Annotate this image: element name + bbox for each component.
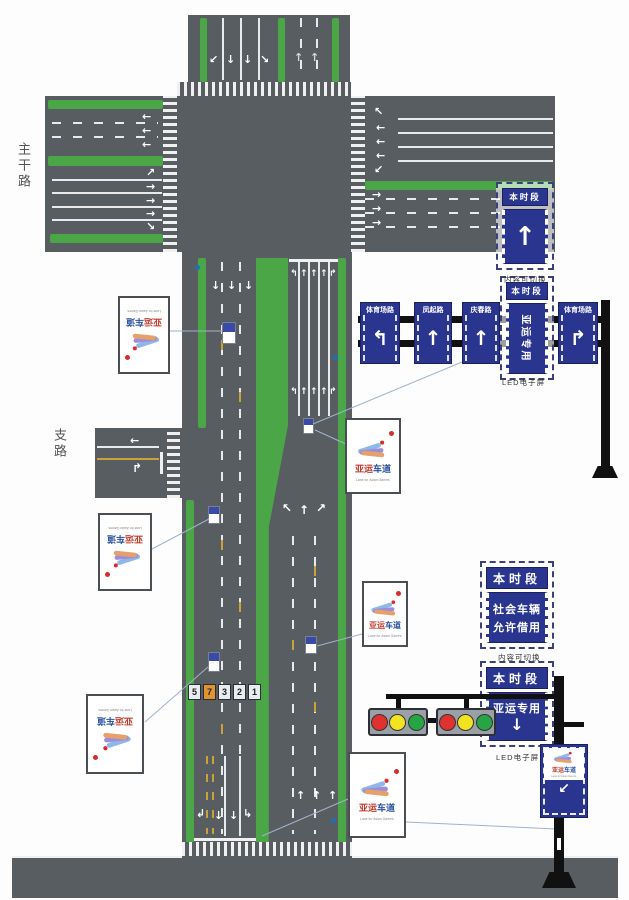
- sign-subtitle: Lane for Asian Games: [127, 310, 161, 314]
- sign-subtitle: Lane for Asian Games: [356, 477, 390, 481]
- sign-title: 亚运车道: [97, 715, 133, 728]
- road-marker-sign: [208, 506, 220, 524]
- green-light-icon: [408, 714, 425, 731]
- dedicated-lane-body: 亚运专用: [506, 303, 548, 374]
- lane-arrow: ↓: [244, 280, 253, 291]
- asian-games-lane-sign: 亚运车道 Lane for Asian Games: [86, 694, 144, 774]
- overhead-sign-tiyuchang-left: 体育场路 ↰: [360, 302, 400, 364]
- sign-subtitle: Lane for Asian Games: [108, 527, 142, 531]
- asian-games-lane-sign: 亚运车道 Lane for Asian Games: [98, 513, 152, 591]
- lane-arrow: ↓: [229, 810, 238, 821]
- lane-arrow: ↙: [374, 164, 383, 175]
- red-sun-icon: [105, 573, 110, 578]
- north-green-strip: [278, 18, 285, 82]
- lane-arrow: ↑: [312, 790, 321, 801]
- road-name: 体育场路: [564, 305, 592, 315]
- crosswalk-north: [177, 82, 351, 96]
- red-sun-icon: [396, 591, 401, 596]
- lane-arrow: ↑: [300, 388, 308, 397]
- sign-subtitle: Lane for Asian Games: [551, 774, 576, 777]
- south-left-green-upper: [198, 258, 206, 428]
- road-name: 凤起路: [423, 305, 444, 315]
- lane-line: [258, 18, 260, 80]
- down-arrow-icon: ↓: [510, 717, 523, 733]
- red-sun-icon: [389, 431, 394, 436]
- lane-arrow: ↙: [209, 54, 218, 65]
- asian-games-emblem-icon: [127, 332, 161, 354]
- down-left-arrow-icon: ↙: [558, 782, 570, 796]
- lane-arrow: ←: [142, 139, 151, 150]
- sign-title: 亚运车道: [355, 462, 391, 475]
- north-green-strip: [332, 18, 339, 82]
- branch-road-label: 支路: [50, 428, 69, 460]
- asian-games-emblem-icon: [97, 730, 133, 753]
- lane-line: [222, 18, 224, 80]
- lane-line: [398, 146, 553, 148]
- red-light-icon: [439, 714, 456, 731]
- yellow-dash: [292, 640, 294, 650]
- lane-arrow: →: [372, 203, 381, 214]
- asian-games-lane-pole-sign: 亚运车道 Lane for Asian Games ↙: [540, 744, 588, 818]
- lane-line: [97, 446, 159, 448]
- crosswalk-branch: [167, 428, 180, 498]
- main-road-label: 主干路: [14, 142, 33, 190]
- crosswalk-east: [351, 96, 365, 252]
- road-marker-sign: [303, 418, 314, 434]
- lane-arrow: ↑: [310, 270, 318, 279]
- asian-games-lane-sign: 亚运车道 Lane for Asian Games: [348, 752, 406, 838]
- straight-arrow-icon: ↑: [473, 328, 490, 348]
- lane-arrow: ↲: [196, 808, 205, 819]
- stop-line-branch: [160, 452, 163, 474]
- yellow-center-dash: [206, 756, 208, 834]
- lane-arrow: ←: [130, 435, 139, 446]
- camera-dot: [195, 265, 200, 270]
- sign-title: 亚运车道: [359, 801, 395, 814]
- lane-arrow: →: [146, 208, 155, 219]
- dedicated-text: 亚运专用: [493, 700, 541, 716]
- lane-line: [398, 132, 553, 134]
- straight-arrow-icon: ↑: [425, 328, 442, 348]
- sign-title: 亚运车道: [126, 317, 162, 330]
- green-light-icon: [476, 714, 493, 731]
- right-turn-arrow-icon: ↱: [570, 328, 587, 348]
- pole-white-band: [557, 838, 561, 850]
- overhead-sign-tiyuchang-right: 体育场路 ↱: [558, 302, 598, 364]
- time-period-header: 本时段: [502, 188, 548, 206]
- overhead-sign-fengqi: 凤起路 ↑: [414, 302, 452, 364]
- lane-number-plate: 2: [233, 684, 246, 700]
- lane-arrow: ←: [142, 111, 151, 122]
- lane-line-dashed: [300, 18, 302, 80]
- stop-line-south-approach: [194, 838, 256, 841]
- south-left-green-lower: [186, 500, 194, 856]
- sign-title: 亚运车道: [107, 534, 143, 547]
- merge-arrow: ↑: [299, 504, 309, 516]
- lane-arrow: ↑: [310, 388, 318, 397]
- lane-line: [239, 756, 241, 836]
- led-sign-dedicated-lane-overhead: 本时段 亚运专用: [500, 276, 554, 380]
- lane-arrow: ←: [376, 122, 385, 133]
- crosswalk-south: [182, 842, 352, 856]
- signal-connector: [428, 718, 436, 723]
- time-period-header: 本时段: [486, 567, 548, 589]
- signal-hanger: [396, 699, 401, 708]
- merge-arrow: ↗: [316, 502, 326, 514]
- sign-title: 亚运车道: [369, 620, 401, 631]
- lane-arrow: ↑: [310, 52, 319, 63]
- lane-arrow: ↑: [320, 270, 328, 279]
- signal-hanger: [464, 699, 469, 708]
- led-sign-social-vehicles: 本时段 社会车辆 允许借用: [480, 561, 554, 649]
- red-sun-icon: [394, 769, 399, 774]
- lane-arrow: ↓: [214, 810, 223, 821]
- road-marker-sign: [208, 652, 220, 672]
- red-sun-icon: [93, 755, 98, 760]
- traffic-light-head: [368, 708, 428, 736]
- asian-games-lane-sign: 亚运车道 Lane for Asian Games: [345, 418, 401, 494]
- lane-arrow: ←: [376, 150, 385, 161]
- yellow-dash: [221, 540, 223, 550]
- yellow-light-icon: [389, 714, 406, 731]
- lane-line-dashed: [292, 536, 294, 834]
- time-period-header: 本时段: [486, 667, 548, 689]
- sign-subtitle: Lane for Asian Games: [360, 816, 394, 820]
- straight-arrow-icon: ↑: [514, 224, 536, 250]
- north-green-strip: [200, 18, 207, 82]
- asian-games-lane-sign: 亚运车道 Lane for Asian Games: [362, 581, 408, 647]
- lane-line: [398, 118, 553, 120]
- left-turn-arrow-icon: ↰: [372, 328, 389, 348]
- borrow-line1: 社会车辆: [493, 601, 541, 617]
- led-sign-this-period-straight: 本时段 ↑: [496, 182, 554, 270]
- lane-line: [224, 756, 226, 836]
- led-screen-caption: LED电子屏: [496, 752, 539, 763]
- lane-arrow: ↑: [328, 790, 337, 801]
- straight-arrow-body: ↑: [502, 209, 548, 264]
- lane-arrow: ↘: [146, 221, 155, 232]
- sign-title: 亚运车道: [552, 765, 576, 774]
- stop-line-north-approach: [289, 259, 338, 262]
- yellow-dash: [239, 392, 241, 402]
- lane-arrow: →: [372, 189, 381, 200]
- west-green-strip: [48, 100, 163, 109]
- red-sun-icon: [125, 356, 130, 361]
- asian-games-emblem-icon: [356, 438, 390, 460]
- yellow-dash: [314, 702, 316, 712]
- signal-mast-arm: [386, 694, 558, 699]
- traffic-plan-diagram: ↙ ↓ ↓ ↘ ↑ ↑ ← ← ← ↗ → → → ↘ ↖ ← ← ← ↙ → …: [0, 0, 629, 900]
- lane-arrow: ↱: [132, 462, 142, 474]
- lane-arrow: ↳: [243, 808, 252, 819]
- lane-arrow: ↖: [374, 106, 383, 117]
- road-marker-sign: [222, 322, 236, 344]
- overhead-sign-qingchun: 庆春路 ↑: [462, 302, 500, 364]
- branch-yellow-line: [97, 458, 159, 460]
- lane-number-plate-highlight: 7: [203, 684, 216, 700]
- merge-arrow: ↖: [282, 502, 292, 514]
- west-green-strip: [50, 234, 163, 243]
- yellow-light-icon: [457, 714, 474, 731]
- sign-subtitle: Lane for Asian Games: [368, 633, 402, 637]
- road-marker-sign: [305, 636, 317, 654]
- asian-games-emblem-icon: [370, 598, 400, 618]
- lane-arrow: ↑: [296, 790, 305, 801]
- lane-arrow: ↓: [243, 54, 252, 65]
- lane-arrow: ↘: [260, 54, 269, 65]
- lane-arrow: ↰: [290, 270, 298, 279]
- borrow-body: 社会车辆 允许借用: [486, 592, 548, 643]
- lane-arrow: ←: [376, 136, 385, 147]
- vertical-text: 亚运专用: [520, 315, 535, 363]
- lane-line: [240, 18, 242, 80]
- lane-arrow: ←: [142, 125, 151, 136]
- lane-line: [398, 160, 553, 162]
- traffic-light-head: [436, 708, 496, 736]
- west-green-strip: [48, 156, 163, 166]
- lane-arrow: ↱: [329, 388, 337, 397]
- red-light-icon: [371, 714, 388, 731]
- road-name: 体育场路: [366, 305, 394, 315]
- lane-number-plate: 5: [188, 684, 201, 700]
- asian-games-emblem-icon: [108, 549, 142, 571]
- asian-games-lane-sign: 亚运车道 Lane for Asian Games: [118, 296, 170, 374]
- lane-arrow: →: [372, 217, 381, 228]
- borrow-line2: 允许借用: [493, 619, 541, 635]
- yellow-dash: [314, 566, 316, 576]
- lane-arrow: ↑: [300, 270, 308, 279]
- lane-arrow: ↰: [290, 388, 298, 397]
- lane-arrow: →: [146, 195, 155, 206]
- sign-subtitle: Lane for Asian Games: [98, 708, 132, 712]
- signal-pole-stub: [564, 722, 584, 727]
- switchable-caption: 内容可切换: [504, 274, 547, 285]
- asian-games-emblem-icon: [359, 776, 395, 799]
- lane-line-dashed: [239, 262, 241, 834]
- lane-line-dashed: [316, 18, 318, 80]
- camera-dot: [331, 818, 336, 823]
- led-screen-caption: LED电子屏: [502, 377, 545, 388]
- lane-arrow: ↱: [329, 270, 337, 279]
- road-name: 庆春路: [471, 305, 492, 315]
- lane-arrow: ↑: [320, 388, 328, 397]
- camera-dot: [333, 355, 338, 360]
- lane-arrow: ↑: [294, 52, 303, 63]
- lane-arrow: ↗: [146, 167, 155, 178]
- yellow-dash: [221, 724, 223, 734]
- lane-number-plate: 3: [218, 684, 231, 700]
- lane-arrow: ↓: [226, 54, 235, 65]
- yellow-dash: [239, 602, 241, 612]
- sign-inner-panel: 亚运车道 Lane for Asian Games: [544, 748, 584, 780]
- lane-arrow: ↓: [211, 280, 220, 291]
- gantry-pole-base: [592, 466, 618, 478]
- lane-arrow: ↓: [227, 280, 236, 291]
- asian-games-emblem-icon: [552, 750, 576, 765]
- yellow-center-dash: [212, 756, 214, 834]
- crosswalk-west: [163, 96, 177, 252]
- lane-number-plate: 1: [248, 684, 261, 700]
- intersection-box: [177, 96, 351, 252]
- gantry-pole: [601, 300, 610, 470]
- south-right-green: [338, 258, 346, 856]
- lane-arrow: →: [146, 181, 155, 192]
